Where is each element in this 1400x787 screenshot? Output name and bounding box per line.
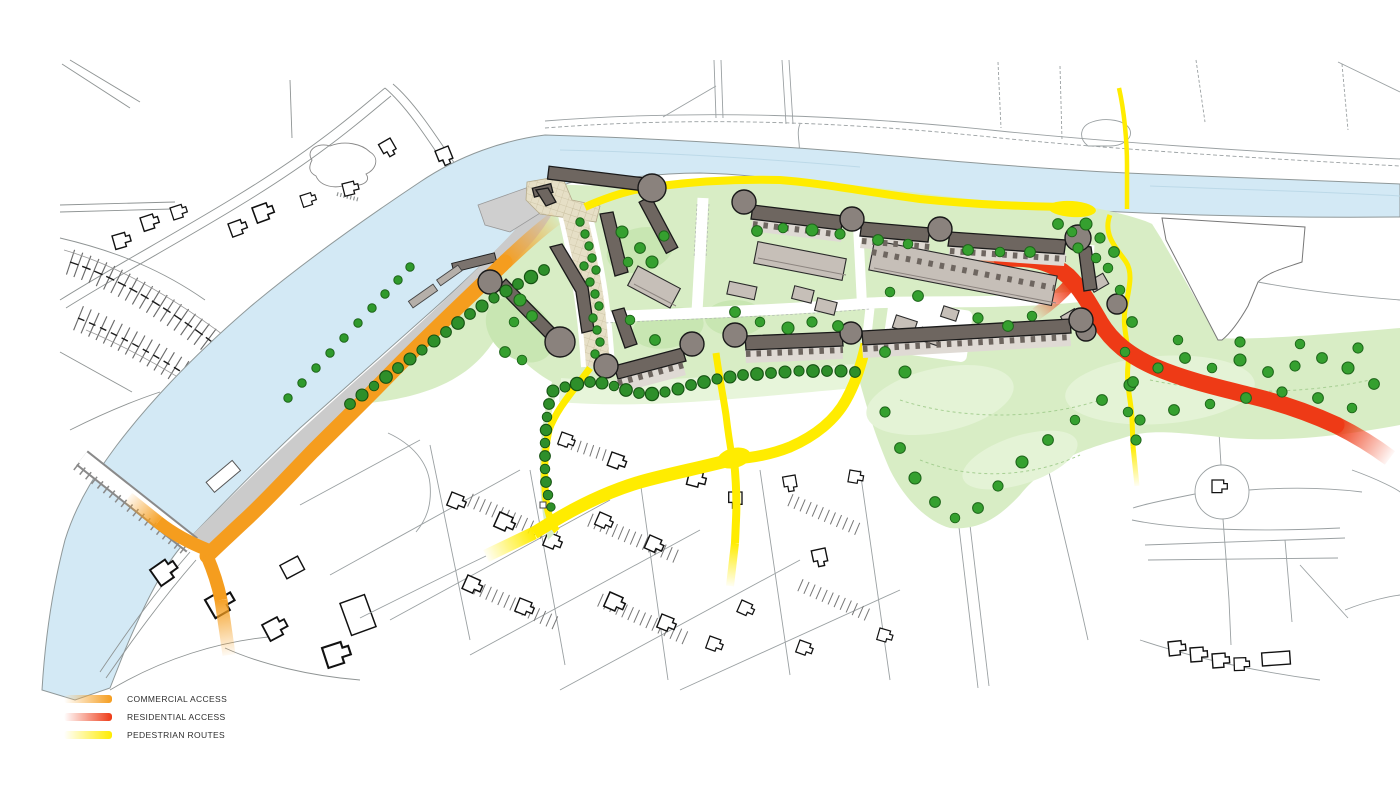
residential-access-swatch bbox=[64, 713, 112, 721]
pedestrian-routes-label: PEDESTRIAN ROUTES bbox=[127, 731, 225, 740]
commercial-access-label: COMMERCIAL ACCESS bbox=[127, 695, 227, 704]
pedestrian-routes-swatch bbox=[64, 731, 112, 739]
legend: COMMERCIAL ACCESS RESIDENTIAL ACCESS PED… bbox=[64, 690, 227, 744]
legend-item-pedestrian-routes: PEDESTRIAN ROUTES bbox=[64, 726, 227, 744]
commercial-access-swatch bbox=[64, 695, 112, 703]
map-canvas bbox=[0, 0, 1400, 787]
masterplan-map: COMMERCIAL ACCESS RESIDENTIAL ACCESS PED… bbox=[0, 0, 1400, 787]
legend-item-commercial-access: COMMERCIAL ACCESS bbox=[64, 690, 227, 708]
legend-item-residential-access: RESIDENTIAL ACCESS bbox=[64, 708, 227, 726]
residential-access-label: RESIDENTIAL ACCESS bbox=[127, 713, 226, 722]
path-marker bbox=[540, 502, 546, 508]
